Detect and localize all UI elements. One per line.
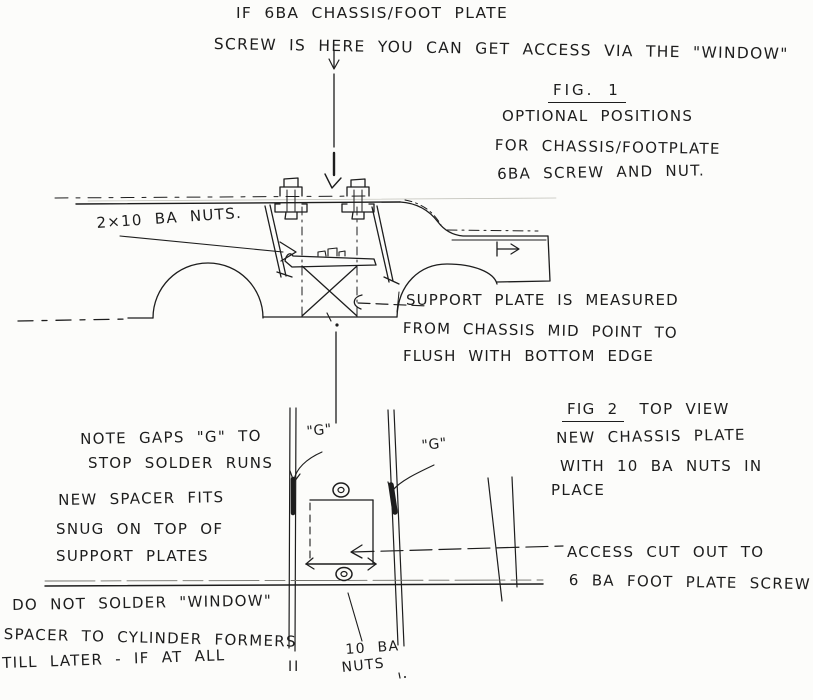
down-arrow-leader bbox=[325, 50, 341, 188]
scanned-diagram-page: IF 6BA CHASSIS/FOOT PLATE SCREW IS HERE … bbox=[0, 0, 813, 700]
fig1-caption-line2: FOR CHASSIS/FOOTPLATE bbox=[495, 138, 721, 157]
fig1-side-view bbox=[18, 50, 556, 327]
gaps-note-line1: NOTE GAPS "G" TO bbox=[80, 429, 262, 447]
rail-end-mark: II bbox=[288, 660, 300, 674]
fig2-title-row: FIG 2TOP VIEW bbox=[562, 402, 730, 417]
cylinder-former-lines bbox=[488, 477, 517, 601]
access-leader bbox=[351, 545, 563, 558]
nuts-label-leader bbox=[120, 236, 296, 261]
warning-note-line1: DO NOT SOLDER "WINDOW" bbox=[12, 593, 272, 613]
left-rail bbox=[289, 408, 296, 651]
fig2-caption-line1: NEW CHASSIS PLATE bbox=[556, 428, 746, 446]
fig2-nuts-label-line1: 10 BA bbox=[345, 639, 400, 657]
spacer-plate bbox=[306, 500, 376, 570]
right-rail bbox=[388, 410, 404, 646]
gap-leader-left bbox=[290, 452, 322, 482]
spacer-note-line1: NEW SPACER FITS bbox=[58, 490, 225, 508]
top-note-line1: IF 6BA CHASSIS/FOOT PLATE bbox=[236, 6, 508, 22]
fig2-title-suffix: TOP VIEW bbox=[640, 400, 730, 418]
gap-label-right: "G" bbox=[421, 436, 448, 453]
fig2-title: FIG 2 bbox=[562, 400, 624, 422]
support-plate bbox=[285, 248, 376, 267]
spacer-note-line2: SNUG ON TOP OF bbox=[56, 522, 223, 537]
fig1-caption-line3: 6BA SCREW AND NUT. bbox=[497, 163, 705, 182]
gap-label-left: "G" bbox=[306, 422, 333, 439]
access-note-line1: ACCESS CUT OUT TO bbox=[567, 545, 764, 560]
spacer-note-line3: SUPPORT PLATES bbox=[56, 549, 209, 564]
fig1-support-note-line1: SUPPORT PLATE IS MEASURED bbox=[406, 293, 679, 308]
datum-line bbox=[45, 580, 543, 586]
fig1-support-note-line3: FLUSH WITH BOTTOM EDGE bbox=[403, 349, 654, 364]
fig2-caption-line2: WITH 10 BA NUTS IN bbox=[560, 459, 762, 474]
access-note-line2: 6 BA FOOT PLATE SCREW bbox=[569, 573, 811, 592]
nut-top-icon bbox=[333, 483, 349, 497]
fig2-caption-line3: PLACE bbox=[551, 483, 605, 498]
nut-bottom-icon bbox=[336, 568, 352, 581]
gaps-note-line2: STOP SOLDER RUNS bbox=[88, 456, 273, 471]
fig1-caption-line1: OPTIONAL POSITIONS bbox=[502, 109, 693, 124]
gap-leader-right bbox=[388, 465, 434, 492]
fig1-title: FIG. 1 bbox=[548, 83, 626, 98]
